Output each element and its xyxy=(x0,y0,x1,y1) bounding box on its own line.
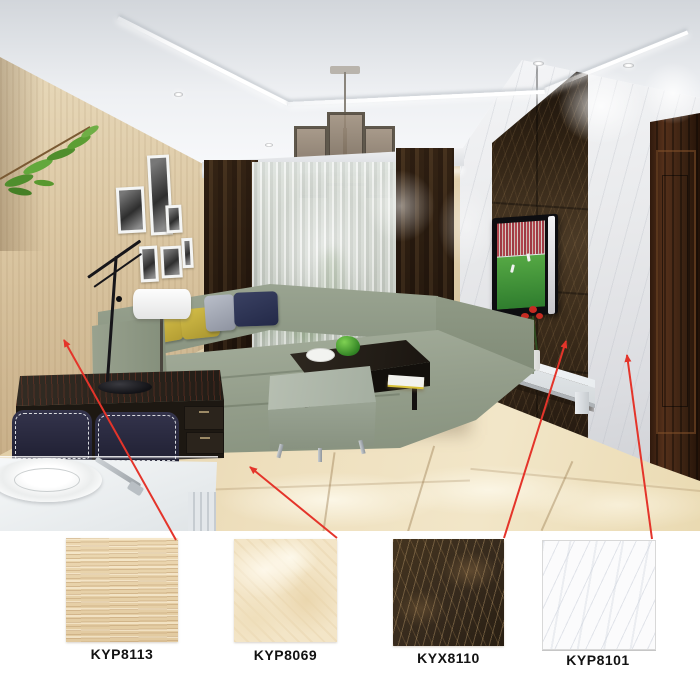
downlight xyxy=(623,63,634,68)
table-lamp-shade xyxy=(133,289,191,319)
decor-plate xyxy=(306,348,335,362)
chair-piping xyxy=(98,415,176,461)
wall-light-pool xyxy=(643,62,700,124)
photo-frame xyxy=(165,205,182,234)
chandelier-shade xyxy=(327,112,365,160)
tile-showroom-image: KYP8113 KYP8069 KYX8110 KYP8101 xyxy=(0,0,700,674)
chair-piping xyxy=(15,413,89,459)
photo-frame xyxy=(139,246,159,283)
drawer-handle xyxy=(200,437,210,439)
dark-brown-marble-tile-swatch xyxy=(393,539,504,646)
product-code: KYP8113 xyxy=(66,646,178,662)
plate-rim xyxy=(14,468,80,492)
navy-pillow xyxy=(233,291,278,327)
product-card: KYP8101 xyxy=(542,540,654,648)
dining-chair xyxy=(12,410,92,462)
task-lamp-base xyxy=(98,380,152,394)
tv-screen xyxy=(497,220,545,309)
product-code: KYX8110 xyxy=(393,650,504,666)
downlight xyxy=(265,143,273,147)
beige-marble-tile-swatch xyxy=(234,539,337,642)
product-card: KYP8113 xyxy=(66,538,178,642)
console-drawer xyxy=(186,432,224,454)
tv-crowd xyxy=(497,220,545,256)
beige-striped-tile-swatch xyxy=(66,538,178,642)
green-decor xyxy=(336,336,360,356)
living-room-render xyxy=(0,0,700,531)
bw-photo xyxy=(163,249,179,276)
photo-frame xyxy=(160,245,183,278)
tv-soccer-pitch xyxy=(497,255,545,310)
drawer-handle xyxy=(199,411,209,413)
product-code: KYP8069 xyxy=(234,647,337,663)
wall-light-pool xyxy=(438,183,494,267)
ottoman-leg xyxy=(318,448,322,462)
red-flower xyxy=(536,313,543,319)
counter-side-slats xyxy=(188,492,216,531)
task-lamp-joint xyxy=(116,296,122,302)
product-card: KYP8069 xyxy=(234,539,337,642)
bw-photo xyxy=(119,189,143,230)
red-flower xyxy=(529,306,537,313)
door-panel-inner xyxy=(662,175,688,407)
bw-photo xyxy=(168,208,179,230)
bw-photo xyxy=(184,241,190,265)
product-card: KYX8110 xyxy=(393,539,504,646)
downlight xyxy=(174,92,183,97)
photo-frame xyxy=(181,238,194,269)
coffee-table-leg xyxy=(412,388,417,410)
downlight xyxy=(533,61,544,66)
bw-photo xyxy=(142,249,156,280)
wall-light-pool xyxy=(558,68,644,144)
tv-shelf-leg xyxy=(575,392,589,414)
white-marble-tile-swatch xyxy=(542,540,656,650)
product-code: KYP8101 xyxy=(542,652,654,668)
table-lamp-pole xyxy=(160,318,163,372)
wall-light-pool xyxy=(365,170,435,242)
console-drawer xyxy=(184,406,224,430)
gray-pillow xyxy=(204,294,236,332)
tv-side-rim xyxy=(548,216,555,314)
photo-frame xyxy=(116,186,146,233)
